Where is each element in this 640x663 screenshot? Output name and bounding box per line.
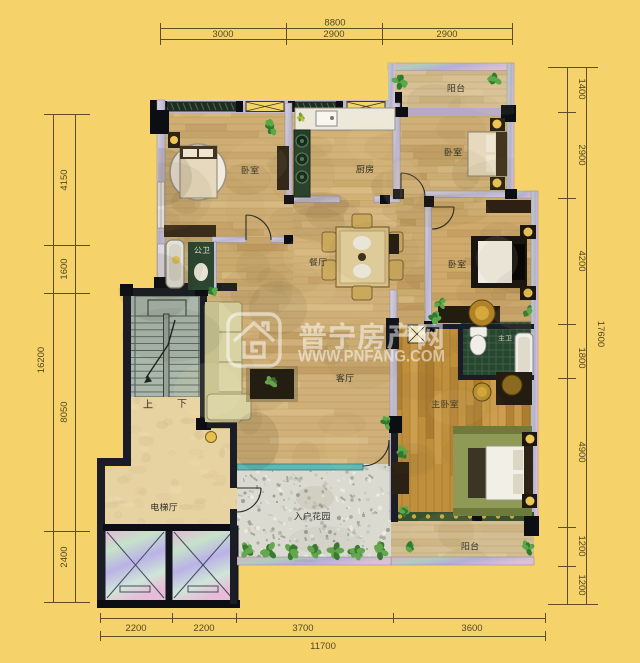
svg-text:8050: 8050: [59, 401, 70, 422]
svg-text:1800: 1800: [576, 347, 587, 368]
svg-text:1600: 1600: [59, 258, 70, 279]
svg-text:WWW.PNFANG.COM: WWW.PNFANG.COM: [298, 347, 445, 366]
svg-text:4200: 4200: [576, 250, 587, 271]
svg-text:2200: 2200: [125, 623, 146, 634]
svg-text:8800: 8800: [324, 18, 345, 29]
svg-text:1400: 1400: [576, 78, 587, 99]
svg-text:17600: 17600: [595, 321, 606, 347]
svg-text:4900: 4900: [576, 441, 587, 462]
svg-text:2900: 2900: [323, 29, 344, 40]
svg-text:1200: 1200: [576, 535, 587, 556]
svg-text:3700: 3700: [292, 623, 313, 634]
svg-text:2200: 2200: [193, 623, 214, 634]
svg-text:11700: 11700: [310, 641, 336, 652]
svg-text:16200: 16200: [36, 347, 47, 373]
svg-text:3600: 3600: [461, 623, 482, 634]
svg-text:3000: 3000: [212, 29, 233, 40]
svg-text:2900: 2900: [436, 29, 457, 40]
svg-text:1200: 1200: [576, 574, 587, 595]
svg-text:2400: 2400: [59, 546, 70, 567]
svg-text:2900: 2900: [576, 144, 587, 165]
svg-text:4150: 4150: [59, 169, 70, 190]
